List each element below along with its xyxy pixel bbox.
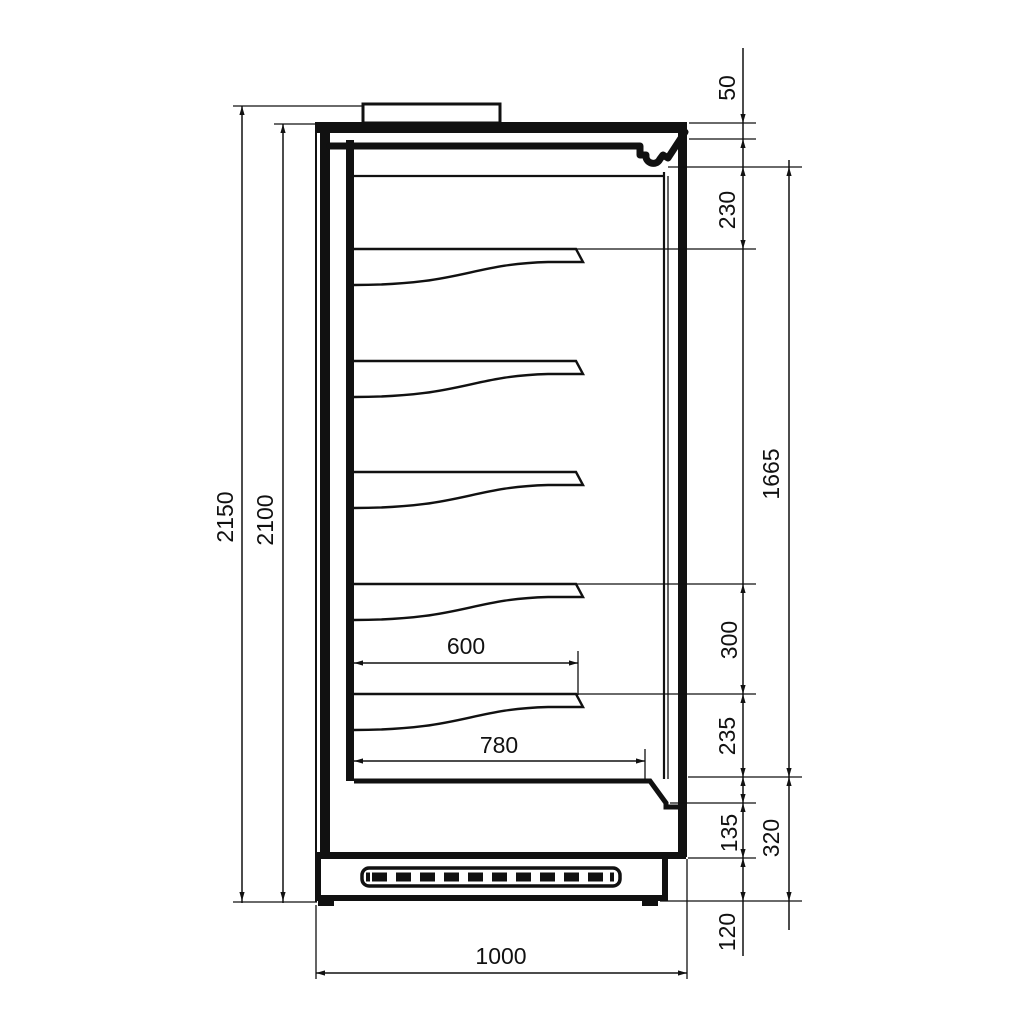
- deck-profile: [354, 781, 684, 807]
- dimension-chain-right-outer: 1665 320: [758, 160, 792, 930]
- back-wall-band: [320, 122, 330, 858]
- front-frame: [678, 122, 687, 857]
- dimension-chain-right-inner: 50 230 300 235 135 120: [714, 48, 746, 956]
- dim-label-overall-depth: 1000: [475, 943, 526, 969]
- dim-label-display-opening: 1665: [758, 448, 784, 499]
- dim-label-deck-depth: 780: [480, 732, 518, 758]
- shelf-2: [354, 361, 583, 397]
- shelf-5: [354, 694, 583, 730]
- canopy-top-band: [316, 122, 686, 133]
- dim-label-canopy-top-band: 50: [714, 75, 740, 101]
- dimension-overall-height: 2150: [212, 106, 245, 903]
- canopy-air-discharge: [330, 132, 685, 163]
- foot-right: [642, 901, 658, 906]
- plinth-left-edge: [316, 859, 321, 901]
- shelf-4: [354, 584, 583, 620]
- dim-label-overall-height: 2150: [212, 491, 238, 542]
- drawing-canvas: 2150 2100 50 230 300 235 135 120: [0, 0, 1024, 1024]
- dimension-body-height: 2100: [252, 124, 286, 903]
- dim-label-bottom-shelf-to-deck: 235: [714, 717, 740, 755]
- dimension-overall-depth: 1000: [316, 943, 687, 976]
- dimension-deck-depth: 780: [354, 732, 645, 764]
- dim-label-body-height: 2100: [252, 494, 278, 545]
- dim-label-base-section: 320: [758, 819, 784, 857]
- dim-label-canopy-front: 230: [714, 191, 740, 229]
- base-grille: [362, 868, 620, 886]
- foot-left: [318, 901, 334, 906]
- shelf-1: [354, 249, 583, 285]
- back-wall-outer-line: [315, 122, 317, 902]
- dimension-shelf-depth: 600: [354, 633, 578, 666]
- top-spacer-box: [363, 104, 500, 123]
- plinth-bottom-line: [316, 895, 668, 901]
- shelf-3: [354, 472, 583, 508]
- plinth-top-line: [316, 852, 686, 859]
- dim-label-front-panel: 135: [716, 814, 742, 852]
- plinth-front-face: [662, 859, 668, 901]
- dim-label-plinth: 120: [714, 913, 740, 951]
- cabinet-profile: [315, 104, 687, 906]
- back-inner-panel: [346, 140, 354, 781]
- dim-label-shelf-pitch: 300: [716, 621, 742, 659]
- cabinet-section-drawing: 2150 2100 50 230 300 235 135 120: [0, 0, 1024, 1024]
- dim-label-shelf-depth: 600: [447, 633, 485, 659]
